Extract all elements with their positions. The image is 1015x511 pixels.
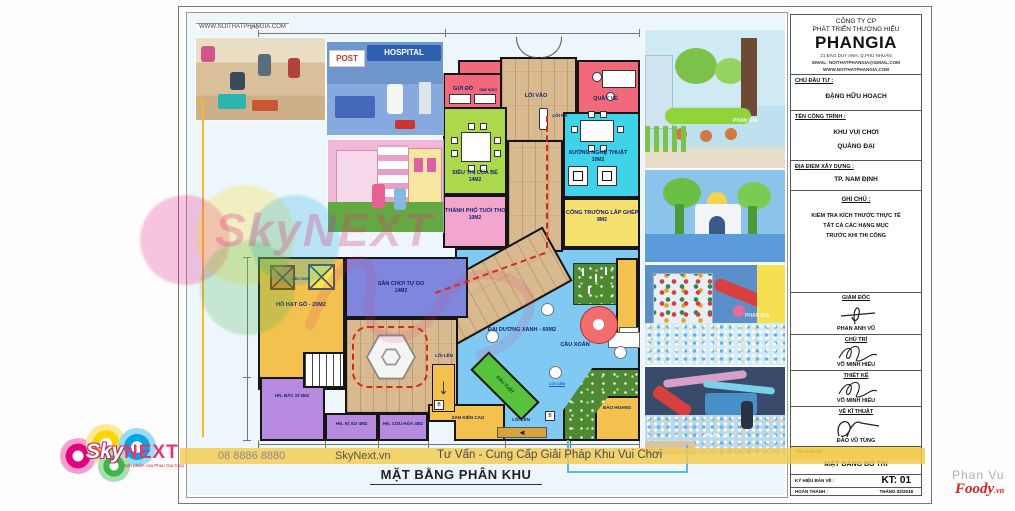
photo-shape	[651, 384, 693, 419]
table	[580, 120, 614, 142]
room-label-loi-ra: LỐI RA	[545, 113, 575, 119]
location-label: ĐỊA ĐIỂM XÂY DỰNG :	[795, 164, 854, 170]
dimension-line-bottom	[258, 444, 640, 445]
project-label: TÊN CÔNG TRÌNH :	[795, 114, 846, 120]
photo-shape	[741, 38, 757, 116]
note-label: GHI CHÚ :	[791, 197, 921, 203]
note-line1: KIỂM TRA KÍCH THƯỚC THỰC TẾ	[791, 213, 921, 219]
grass-stick	[595, 274, 597, 282]
signature-chu-tri: CHỦ TRÌ VÕ MINH HIẾU	[791, 335, 921, 371]
chair	[588, 111, 595, 118]
ticket-desk	[602, 70, 636, 88]
location-value: TP. NAM ĐỊNH	[791, 176, 921, 183]
photo-ballpit-climbing-wall: PHAN GIA	[645, 265, 785, 365]
frame-website-label: WWW.NOITHATPHANGIA.COM	[196, 23, 289, 30]
title-block-completed: HOÀN THÀNH : THÁNG 02/2018	[791, 488, 921, 497]
photo-hospital-roleplay: POST HOSPITAL	[327, 42, 443, 135]
note-line2: TẤT CẢ CÁC HẠNG MỤC	[791, 223, 921, 229]
photo-watermark: PHAN GIA	[705, 433, 729, 439]
photo-watermark: PHAN GIA	[745, 313, 769, 319]
column	[614, 346, 627, 359]
chair	[571, 126, 578, 133]
investor-label: CHỦ ĐẦU TƯ :	[795, 78, 833, 84]
title-block-drawing-code: KÝ HIỆU BẢN VẼ : KT: 01	[791, 475, 921, 488]
play-mat-inner	[573, 171, 583, 181]
photo-wood-bead-pool	[196, 38, 325, 120]
room-label-cong-truong: CÔNG TRƯỜNG LẮP GHÉP 8M2	[566, 210, 638, 223]
company-email: EMAIL: NOITHATPHANGIA@GMAIL.COM	[791, 60, 921, 65]
room-label-ghe-ngoi: GHẾ NGỒI	[477, 88, 499, 92]
photo-shape	[748, 206, 757, 236]
room-label-sieu-thi: SIÊU THỊ CỦA BÉ 14M2	[447, 170, 503, 183]
path-dashed-corridor	[546, 116, 548, 248]
dimension-label-top: 270	[250, 25, 258, 31]
room-label-bac-si: HN. BÁC SĨ 5M2	[263, 393, 321, 399]
credit-site-suffix: .vn	[994, 486, 1004, 495]
bench	[449, 94, 471, 104]
note-line3: TRƯỚC KHI THI CÔNG	[791, 233, 921, 239]
dimension-tick	[378, 440, 379, 448]
photo-shape	[645, 323, 785, 365]
dimension-tick	[258, 440, 259, 448]
room-hn-cuu-hoa	[378, 413, 428, 441]
chair	[494, 137, 501, 144]
title-block-company: CÔNG TY CP PHÁT TRIỂN THƯƠNG HIỆU PHANGI…	[791, 15, 921, 75]
photo-shape	[645, 234, 785, 262]
play-mat-inner	[602, 171, 612, 181]
room-label-loi-len-grass: LỐI LÊN	[543, 381, 571, 386]
chair	[468, 123, 475, 130]
dimension-tick	[325, 440, 326, 448]
room-name: XƯỞNG NGHỆ THUẬT	[569, 150, 628, 156]
stool	[592, 72, 602, 82]
signature-role: THIẾT KẾ	[791, 373, 921, 379]
room-name: THÀNH PHỐ TUỔI THƠ	[445, 208, 506, 214]
down-arrow-icon: ↓	[438, 372, 448, 402]
signature-thiet-ke: THIẾT KẾ VÕ MINH HIẾU	[791, 371, 921, 407]
photo-watermark: PHAN GIA	[733, 118, 757, 124]
notch-white	[429, 420, 456, 441]
dimension-tick	[570, 440, 571, 448]
room-label-xuong-nghe-thuat: XƯỞNG NGHỆ THUẬT 10M2	[567, 150, 629, 163]
signature-stroke	[835, 380, 881, 400]
photo-shape	[733, 305, 745, 317]
grass-stick	[605, 267, 607, 275]
signature-role: GIÁM ĐỐC	[791, 295, 921, 301]
company-line2: PHÁT TRIỂN THƯƠNG HIỆU	[791, 26, 921, 33]
photo-shape	[414, 158, 423, 172]
photo-shape	[700, 130, 712, 142]
column	[541, 303, 554, 316]
photo-shape	[741, 401, 753, 429]
signature-stroke	[837, 302, 879, 326]
drawing-sheet-page: WWW.NOITHATPHANGIA.COM 270	[0, 0, 1015, 511]
logo-sky-text: Sky	[86, 440, 123, 464]
photo-shape	[288, 58, 300, 78]
chair	[600, 111, 607, 118]
photo-shape	[395, 120, 415, 129]
post-sign: POST	[329, 50, 365, 67]
drawing-code-value: KT: 01	[882, 475, 911, 486]
company-website: WWW.NOITHATPHANGIA.COM	[791, 67, 921, 72]
photo-shape	[645, 126, 689, 152]
connector-orange-stub	[196, 100, 204, 102]
room-label-ki-su: HN. KỈ SƯ 4M2	[327, 421, 376, 427]
photo-shape	[675, 48, 717, 84]
connector-blue-bottom	[567, 471, 688, 473]
signature-role: CHỦ TRÌ	[791, 337, 921, 343]
completed-value: THÁNG 02/2018	[879, 489, 913, 494]
photo-shape	[201, 46, 215, 62]
dimension-tick	[505, 440, 506, 448]
photo-ballpit-red-slide: PHAN GIA	[645, 367, 785, 455]
footer-phone: 08 8886 8880	[218, 450, 285, 462]
room-label-dao-hoang: ĐẢO HOANG	[597, 405, 637, 411]
column	[549, 366, 562, 379]
dimension-tick	[428, 440, 429, 448]
signature-ve-ki-thuat: VẼ KĨ THUẬT ĐÀO VŨ TÙNG	[791, 407, 921, 447]
room-label-cau-xoan: CẦU XOẮN	[553, 342, 597, 349]
room-label-thanh-pho: THÀNH PHỐ TUỔI THƠ 10M2	[445, 208, 505, 221]
chair	[480, 123, 487, 130]
company-address: 21 ĐÀO DUY ANH, Q.PHÚ NHUẬN	[791, 53, 921, 58]
photo-shape	[335, 96, 375, 118]
title-block-project: TÊN CÔNG TRÌNH : KHU VUI CHƠI QUẢNG ĐẠI	[791, 111, 921, 161]
room-hn-ki-su	[325, 413, 378, 441]
title-block: CÔNG TY CP PHÁT TRIỂN THƯƠNG HIỆU PHANGI…	[790, 14, 922, 496]
photo-shape	[419, 82, 431, 114]
room-label-loi-len-bottom: LỐI LÊN	[505, 417, 537, 423]
project-line1: KHU VUI CHƠI	[791, 129, 921, 136]
room-label-quay-ve: QUẦY VÉ	[583, 96, 628, 103]
drawing-code-label: KÝ HIỆU BẢN VẼ :	[795, 478, 834, 483]
arrow-bar-bottom: ◄	[497, 427, 547, 438]
signature-name: VÕ MINH HIẾU	[791, 362, 921, 368]
footer-tagline: Tư Vấn - Cung Cấp Giải Pháp Khu Vui Chơi	[437, 449, 662, 461]
chair	[451, 137, 458, 144]
title-block-note: GHI CHÚ : KIỂM TRA KÍCH THƯỚC THỰC TẾ TẤ…	[791, 191, 921, 293]
watermark-center-text: SkyNEXT	[215, 203, 434, 257]
room-area: 14M2	[447, 177, 503, 183]
photo-green-table-playroom: PHAN GIA	[645, 30, 785, 168]
photo-shape	[252, 100, 278, 111]
signature-stroke	[835, 344, 881, 364]
room-area: 10M2	[445, 215, 505, 221]
bench	[474, 94, 496, 104]
photo-shape	[757, 265, 785, 329]
title-block-investor: CHỦ ĐẦU TƯ : ĐẶNG HỮU HOẠCH	[791, 75, 921, 111]
chair	[494, 150, 501, 157]
table	[461, 132, 491, 162]
signature-giam-doc: GIÁM ĐỐC PHAN ANH VŨ	[791, 293, 921, 335]
investor-value: ĐẶNG HỮU HOẠCH	[791, 93, 921, 100]
dimension-tick	[243, 377, 251, 378]
dimension-tick	[445, 29, 446, 37]
grass-stick	[582, 268, 584, 276]
room-label-loi-vao: LỐI VÀO	[513, 93, 559, 100]
dimension-tick	[243, 440, 251, 441]
signature-role: VẼ KĨ THUẬT	[791, 409, 921, 415]
chair	[617, 126, 624, 133]
section-marker: B	[545, 411, 555, 421]
company-line1: CÔNG TY CP	[791, 18, 921, 25]
dimension-tick	[639, 440, 640, 448]
room-label-gui-do: GỬI ĐỒ	[447, 86, 479, 93]
room-label-cuu-hoa: HN. CỨU HỎA 4M2	[380, 421, 426, 427]
room-label-san-kien-cao: SÀN KIẾN CAO	[438, 415, 498, 421]
photo-shape	[675, 204, 684, 238]
company-name: PHANGIA	[791, 33, 921, 53]
photo-castle-playroom	[645, 170, 785, 262]
spiral-slide-center	[593, 319, 604, 330]
credit-site-name: Foody	[955, 481, 994, 497]
signature-name: VÕ MINH HIẾU	[791, 398, 921, 404]
photo-shape	[387, 84, 403, 114]
footer-website: SkyNext.vn	[335, 450, 391, 462]
section-marker: B	[434, 400, 444, 410]
signature-name: ĐÀO VŨ TÙNG	[791, 438, 921, 444]
skynext-logo: Sky NEXT Sản phẩm của Phan Gia Corp	[50, 418, 195, 490]
logo-next-text: NEXT	[124, 442, 179, 464]
sheet-title: MẶT BẰNG PHÂN KHU	[370, 467, 542, 485]
credit-site: Foody.vn	[955, 481, 1004, 498]
photo-shape	[258, 54, 271, 76]
title-block-location: ĐỊA ĐIỂM XÂY DỰNG : TP. NAM ĐỊNH	[791, 161, 921, 191]
completed-label: HOÀN THÀNH :	[795, 489, 828, 494]
photo-shape	[725, 128, 737, 140]
project-line2: QUẢNG ĐẠI	[791, 143, 921, 150]
chair	[451, 150, 458, 157]
dimension-line-top	[258, 33, 640, 34]
logo-tagline: Sản phẩm của Phan Gia Corp	[124, 463, 184, 468]
dimension-tick	[639, 29, 640, 37]
room-name: CÔNG TRƯỜNG LẮP GHÉP	[566, 210, 638, 216]
signature-stroke	[831, 416, 883, 440]
room-area: 10M2	[567, 157, 629, 163]
photo-shape	[230, 72, 245, 90]
grass-patch-top	[573, 263, 618, 305]
credit-name: Phan Vu	[952, 468, 1005, 482]
room-area: 8M2	[566, 217, 638, 223]
photo-shape	[218, 94, 246, 109]
signature-name: PHAN ANH VŨ	[791, 326, 921, 332]
room-name: SIÊU THỊ CỦA BÉ	[452, 170, 498, 176]
photo-shape	[427, 158, 436, 172]
hospital-sign: HOSPITAL	[367, 45, 441, 61]
grass-stick	[588, 286, 590, 294]
